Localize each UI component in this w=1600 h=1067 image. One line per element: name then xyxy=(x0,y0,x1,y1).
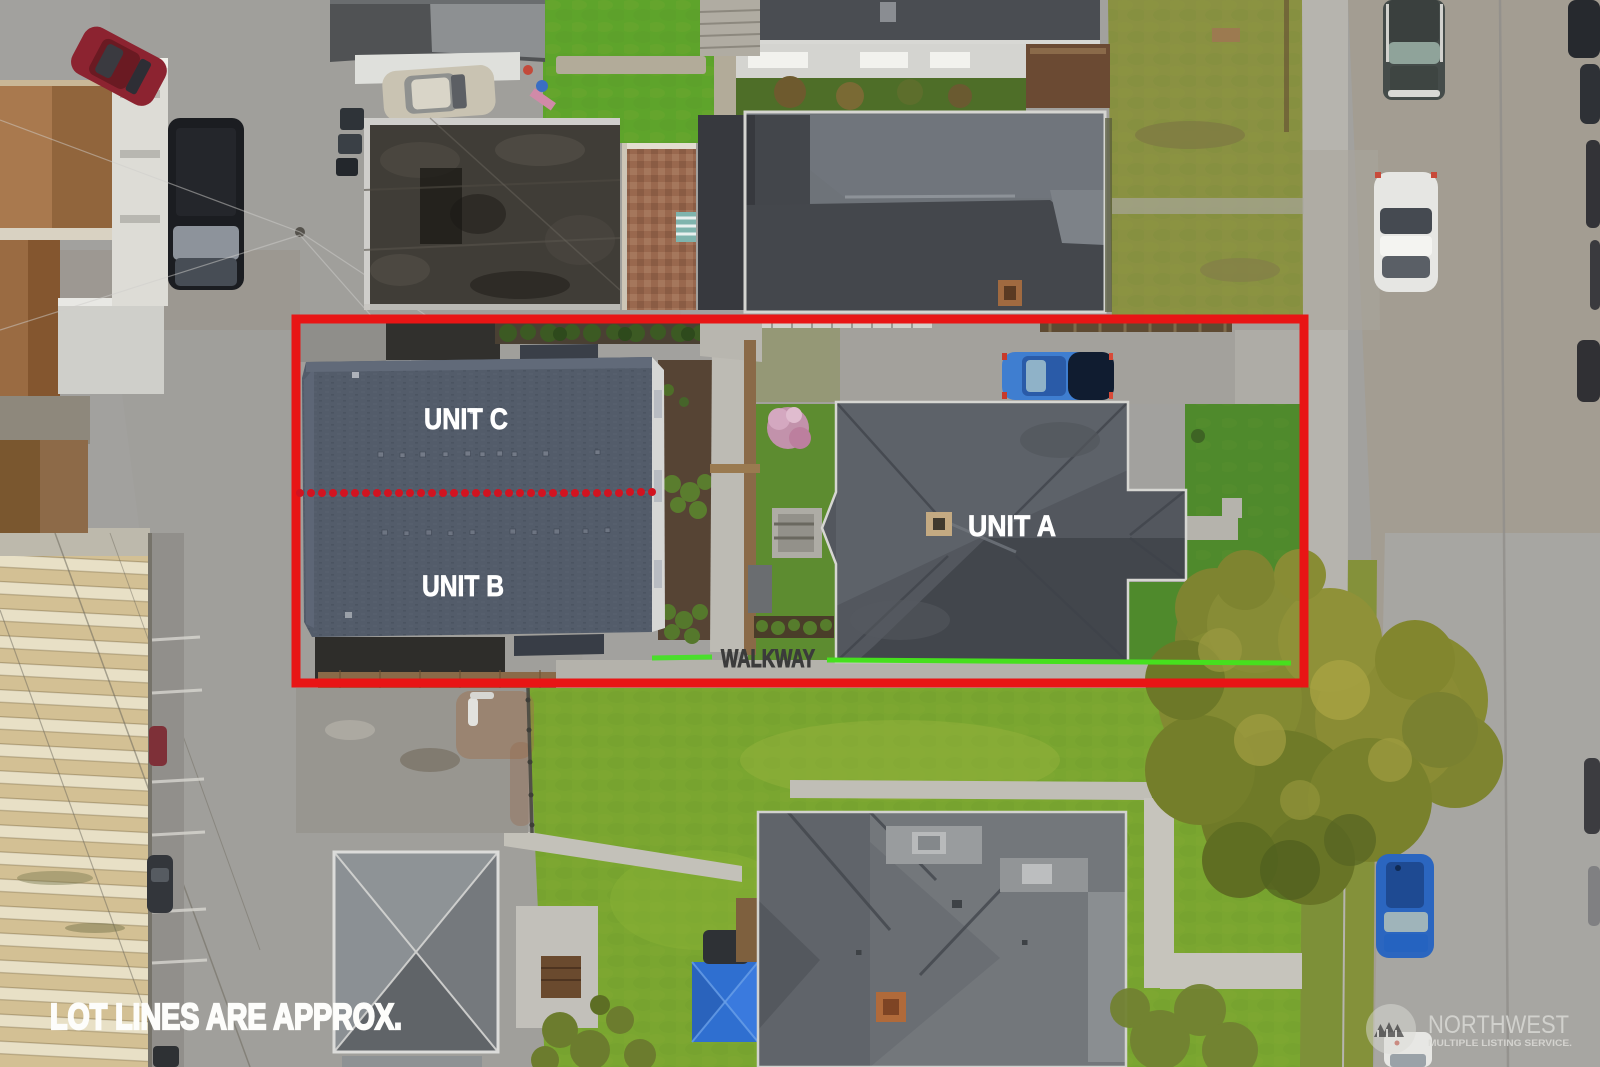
svg-text:LOT LINES ARE APPROX.: LOT LINES ARE APPROX. xyxy=(50,996,402,1037)
svg-text:UNIT B: UNIT B xyxy=(422,570,504,603)
svg-text:UNIT C: UNIT C xyxy=(424,403,508,436)
svg-text:NORTHWEST: NORTHWEST xyxy=(1428,1011,1569,1039)
svg-text:MULTIPLE LISTING SERVICE.: MULTIPLE LISTING SERVICE. xyxy=(1428,1038,1572,1049)
svg-text:UNIT A: UNIT A xyxy=(968,510,1056,543)
svg-text:WALKWAY: WALKWAY xyxy=(721,645,815,673)
